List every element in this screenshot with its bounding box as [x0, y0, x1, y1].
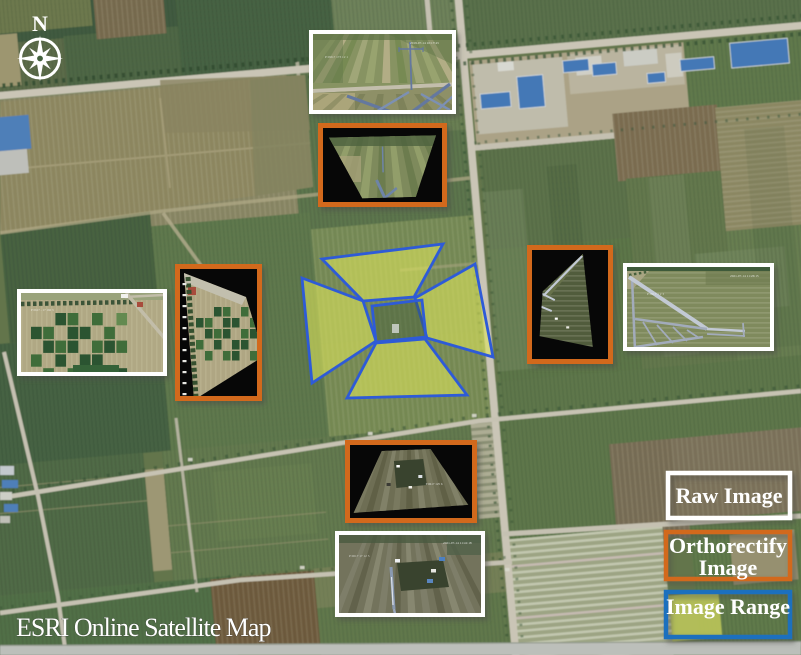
svg-text:P 0617 - 17 160 3: P 0617 - 17 160 3: [31, 308, 54, 312]
svg-text:2021-07-14 11:26:15: 2021-07-14 11:26:15: [730, 274, 759, 278]
svg-text:Image Range: Image Range: [666, 594, 790, 619]
svg-text:2019-07-14 10:17:43: 2019-07-14 10:17:43: [410, 41, 439, 45]
svg-text:P 096.7 173 12 1: P 096.7 173 12 1: [325, 55, 348, 59]
svg-text:P 0617 17 12 5: P 0617 17 12 5: [349, 554, 370, 558]
svg-text:2021-07-14 11:41:18: 2021-07-14 11:41:18: [443, 541, 472, 545]
svg-text:N: N: [32, 11, 48, 36]
svg-text:Raw Image: Raw Image: [676, 483, 783, 508]
svg-text:Image: Image: [699, 555, 758, 580]
svg-text:P 0617 125 6: P 0617 125 6: [426, 482, 443, 486]
svg-text:ESRI Online Satellite Map: ESRI Online Satellite Map: [16, 613, 270, 642]
svg-text:P 0617 1 2 3: P 0617 1 2 3: [647, 292, 664, 296]
